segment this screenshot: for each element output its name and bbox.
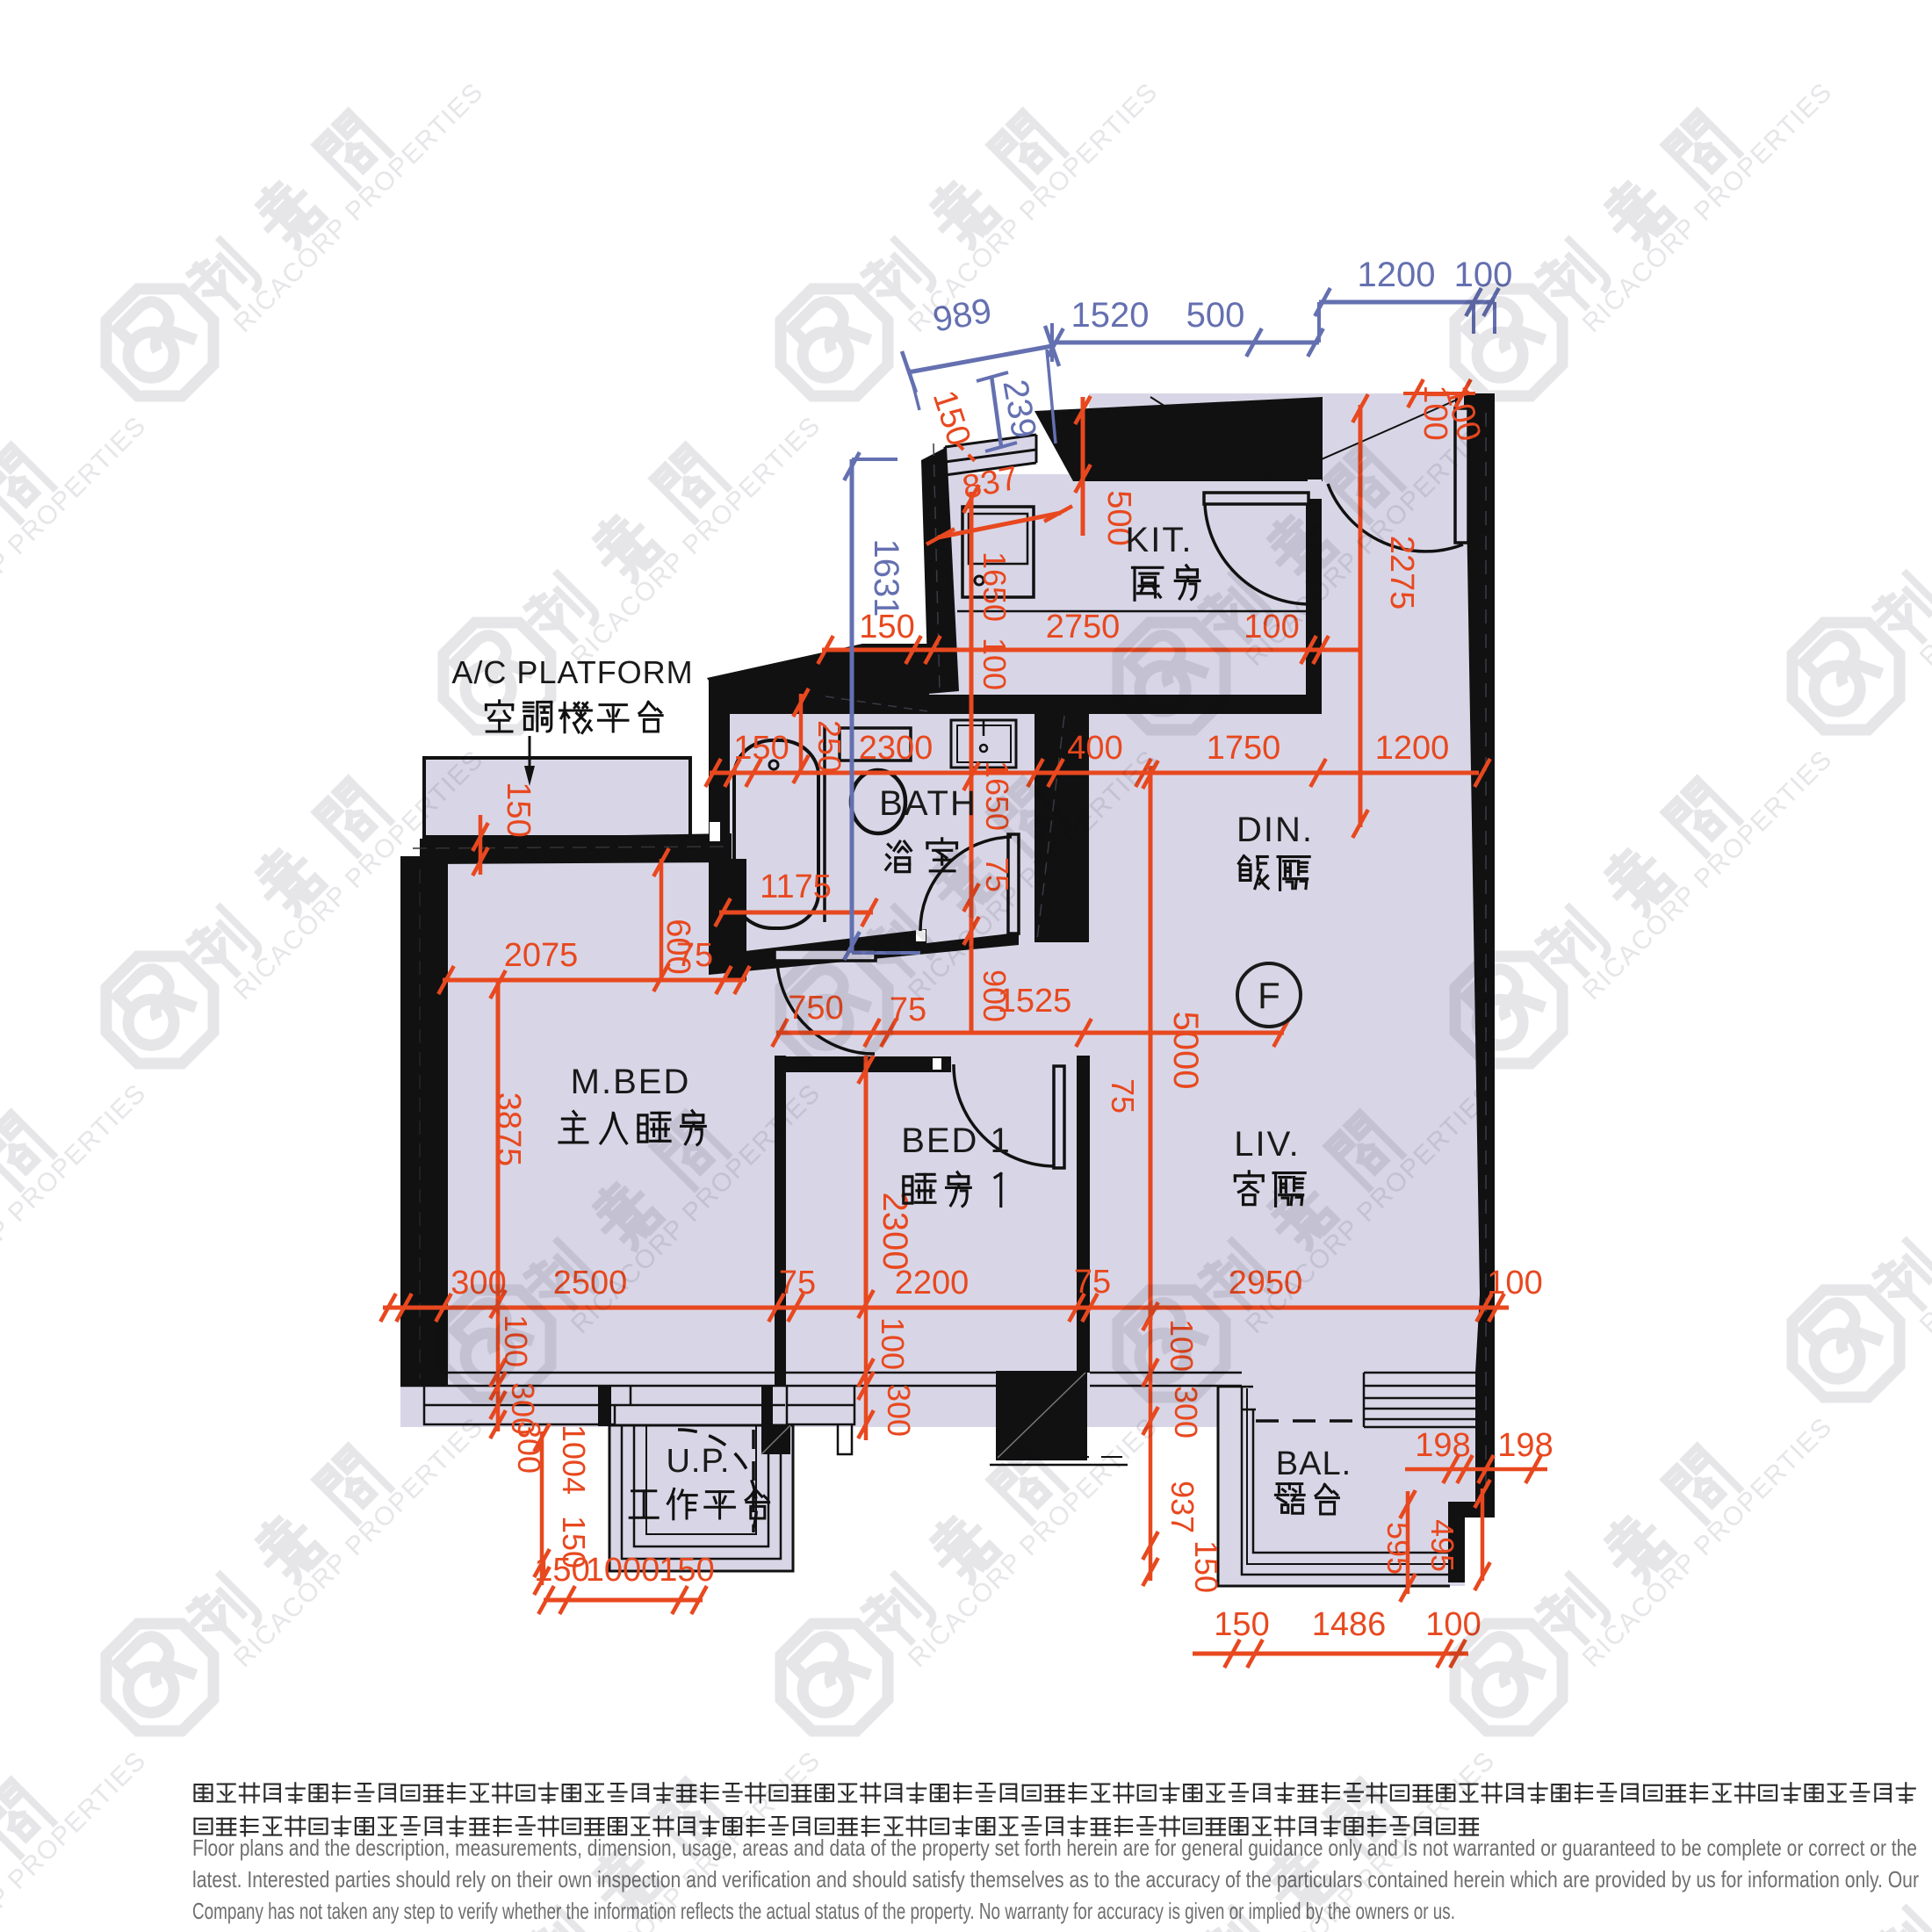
svg-text:75: 75 [1105,1078,1141,1114]
svg-text:Company has not taken any step: Company has not taken any step to verify… [192,1898,1455,1924]
svg-text:300: 300 [881,1384,917,1437]
svg-text:150: 150 [500,782,537,837]
svg-text:500: 500 [1186,296,1245,335]
svg-text:3875: 3875 [490,1092,527,1167]
svg-text:1004: 1004 [556,1424,592,1495]
svg-text:2300: 2300 [859,730,934,767]
svg-text:1631: 1631 [867,539,905,617]
svg-text:495: 495 [1424,1519,1460,1572]
svg-text:LIV.: LIV. [1234,1125,1300,1164]
svg-text:2200: 2200 [895,1265,970,1301]
svg-text:2275: 2275 [1383,536,1420,610]
svg-text:1175: 1175 [760,869,832,905]
svg-text:75: 75 [1074,1264,1111,1301]
svg-text:BAL.: BAL. [1276,1445,1352,1482]
svg-text:1520: 1520 [1071,296,1150,335]
svg-text:100: 100 [1487,1265,1542,1301]
svg-text:198: 198 [1415,1427,1470,1464]
svg-text:198: 198 [1497,1427,1553,1464]
svg-text:150: 150 [659,1552,714,1589]
svg-text:1525: 1525 [998,983,1072,1020]
svg-text:595: 595 [1381,1522,1417,1575]
svg-text:937: 937 [1164,1481,1200,1533]
svg-text:150: 150 [1188,1540,1224,1593]
svg-text:F: F [1258,975,1280,1016]
svg-text:400: 400 [1067,730,1122,767]
svg-text:1200: 1200 [1358,256,1436,294]
svg-text:150: 150 [534,1552,589,1589]
svg-text:300: 300 [451,1265,506,1301]
svg-text:Floor plans and the descriptio: Floor plans and the description, measure… [192,1835,1917,1861]
svg-text:latest. Interested parties sho: latest. Interested parties should rely o… [192,1866,1919,1892]
svg-text:250: 250 [811,720,847,773]
svg-text:2075: 2075 [504,937,579,974]
svg-text:100: 100 [977,638,1013,690]
svg-text:BED 1: BED 1 [901,1121,1012,1160]
svg-text:5000: 5000 [1166,1012,1205,1090]
svg-text:BATH: BATH [879,784,977,823]
svg-text:KIT.: KIT. [1126,521,1193,559]
svg-text:1486: 1486 [1312,1606,1387,1643]
svg-text:1000: 1000 [586,1552,660,1589]
svg-text:1750: 1750 [1207,730,1281,767]
svg-text:150: 150 [1214,1606,1269,1643]
svg-text:75: 75 [676,937,713,974]
svg-text:2750: 2750 [1046,609,1121,645]
svg-text:1200: 1200 [1375,730,1450,767]
svg-text:1650: 1650 [977,551,1013,622]
svg-text:100: 100 [875,1317,911,1370]
svg-text:U.P.: U.P. [666,1443,730,1480]
svg-text:DIN.: DIN. [1236,811,1314,849]
svg-text:M.BED: M.BED [571,1063,691,1101]
